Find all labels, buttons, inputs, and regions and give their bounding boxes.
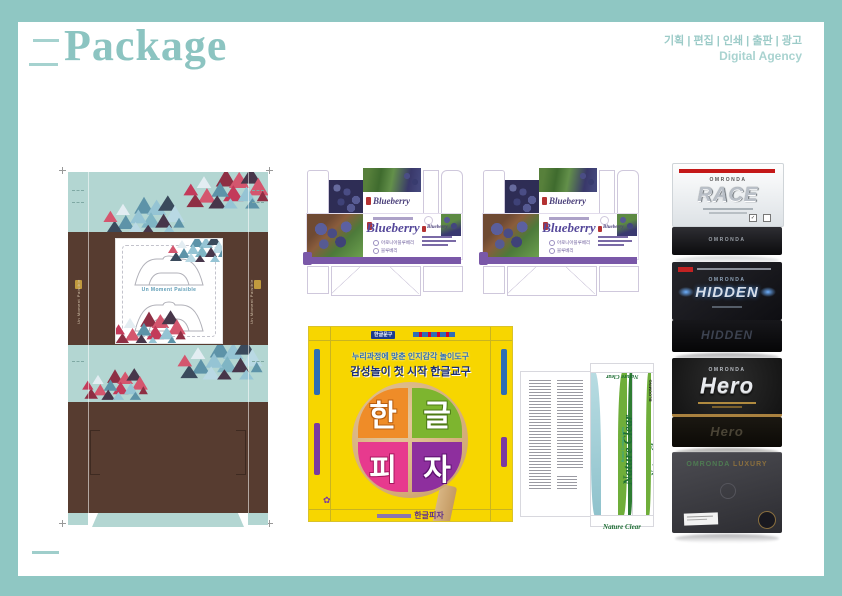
tissue-box-dieline: Un Moment Paisible Un Moment Paisible Un… <box>68 172 268 527</box>
purple-band <box>483 257 637 264</box>
nature-clear-subtitle: Brand Contact Lens <box>620 427 625 462</box>
agency-name: Digital Agency <box>664 49 802 64</box>
nature-clear-dieline: Nature Clear Brand Contact Lens Nature C… <box>520 363 652 525</box>
hidden-box-lid: OMRONDA HIDDEN <box>672 262 782 320</box>
nature-clear-name-side: Nature Clear <box>650 433 654 476</box>
micro-text-bar <box>598 240 632 242</box>
triangle-cluster-icon <box>96 194 192 232</box>
pizza-tagline-1: 누리과정에 맞춘 인지감각 놀이도구 <box>309 351 512 362</box>
bottom-flap <box>92 513 244 527</box>
hero-name: Hero <box>672 373 782 399</box>
fold-dash <box>252 202 264 203</box>
hidden-box-photo: OMRONDA HIDDEN HIDDEN <box>672 262 782 362</box>
agency-info: 기획 | 편집 | 인쇄 | 출판 | 광고 Digital Agency <box>664 34 802 64</box>
fold-line <box>248 172 249 513</box>
pizza-slice-purple: 자 <box>412 442 462 492</box>
product-name-strip: 한글피자 <box>309 510 512 521</box>
micro-text-bar <box>709 212 747 214</box>
dieline-flap <box>483 170 505 216</box>
micro-text-bar <box>687 519 707 521</box>
top-flap: Nature Clear <box>590 363 654 373</box>
tissue-back-panel <box>68 402 268 513</box>
luxury-box-body: OMRONDA LUXURY <box>672 452 782 533</box>
hang-hole <box>424 216 433 225</box>
tissue-mid-panel <box>68 345 268 402</box>
dieline-crease <box>331 266 361 294</box>
dieline-flap <box>483 266 505 294</box>
nature-clear-name-flipped: Nature Clear <box>606 373 639 379</box>
blueberry-title-side: Blueberry <box>603 225 624 230</box>
pizza-slice-green: 글 <box>412 388 462 438</box>
top-badge: 한글문구 <box>371 331 395 339</box>
tissue-side-label: Un Moment Paisible <box>76 279 81 324</box>
flavor-option: 블루베리 <box>549 248 574 254</box>
red-seal <box>366 197 371 205</box>
handle-cut <box>90 430 91 474</box>
tissue-top-panel <box>68 172 268 232</box>
blueberry-title-small: Blueberry <box>549 196 605 206</box>
option-circle-icon <box>373 240 379 246</box>
hidden-box-base: HIDDEN <box>672 320 782 352</box>
micro-text-lines <box>557 380 583 468</box>
title-mark-line-bottom <box>29 63 58 66</box>
micro-text-bar <box>598 236 628 238</box>
main-face-panel: Nature Clear Brand Contact Lens <box>590 371 634 517</box>
footer-dash <box>32 551 59 554</box>
red-seal <box>422 226 426 232</box>
handle-cut <box>245 430 246 474</box>
red-banner <box>679 169 775 173</box>
flavor-option: 아로니아블루베리 <box>549 240 590 246</box>
checkbox-empty-icon <box>763 214 771 222</box>
fold-line <box>88 172 89 513</box>
base-name-label: Hero <box>672 424 782 439</box>
base-brand-label: OMRONDA <box>672 237 782 243</box>
bottom-flap <box>68 513 88 525</box>
blueberry-photo <box>505 180 539 214</box>
micro-text-bar <box>598 244 624 246</box>
handle-cut <box>90 474 100 475</box>
luxury-box-photo: OMRONDA LUXURY <box>672 452 782 543</box>
top-micro-text-bar <box>413 332 455 337</box>
blueberry-leaves-photo <box>363 168 421 192</box>
dieline-flap <box>441 170 463 216</box>
triangle-cluster-icon <box>180 172 268 210</box>
purple-band <box>307 257 461 264</box>
reflection <box>675 534 779 543</box>
blooming-brand: BLOOMING <box>648 380 653 402</box>
emblem-icon <box>720 483 736 499</box>
side-panel-text-bar <box>501 437 507 467</box>
micro-text-bar <box>703 208 753 210</box>
dieline-crease <box>389 266 419 294</box>
triangle-cluster-icon <box>164 238 223 263</box>
bottom-flap: Nature Clear <box>590 515 654 527</box>
side-panel-text-bar <box>314 349 320 395</box>
race-box-lid: OMRONDA RACE ✓ <box>672 163 784 227</box>
tissue-label: Un Moment Paisible <box>116 287 222 293</box>
dieline-flap <box>307 170 329 216</box>
fold-dash <box>72 190 84 191</box>
blue-wave <box>591 372 601 516</box>
side-face-panel: Nature Clear BLOOMING <box>632 371 654 517</box>
micro-text-bar <box>712 406 742 408</box>
instructions-panel <box>520 371 592 517</box>
red-seal <box>542 197 547 205</box>
dieline-flap <box>617 170 639 216</box>
micro-text-bar <box>697 268 771 270</box>
option-circle-icon <box>373 248 379 254</box>
micro-text-bar <box>687 516 713 518</box>
fold-line <box>309 340 512 341</box>
dieline-crease <box>565 266 595 294</box>
reg-mark <box>59 520 66 527</box>
reg-mark <box>59 167 66 174</box>
micro-text-bar <box>422 244 448 246</box>
blueberry-photo-main <box>307 214 363 257</box>
base-name-label: HIDDEN <box>672 328 782 342</box>
micro-text-bar <box>712 306 742 308</box>
tissue-side-label: Un Moment Paisible <box>249 279 254 324</box>
dieline-flap <box>599 266 639 292</box>
brand-label: OMRONDA <box>672 277 782 283</box>
handle-cut <box>236 474 246 475</box>
micro-text-lines <box>529 380 551 490</box>
title-mark-line-top <box>33 39 59 42</box>
gold-logo <box>254 280 261 289</box>
round-badge <box>758 511 776 529</box>
dieline-flap <box>423 266 463 292</box>
luxury-name: LUXURY <box>733 461 768 468</box>
hangul-pizza-box: 한글문구 누리과정에 맞춘 인지감각 놀이도구 감성놀이 첫 시작 한글교구 한… <box>309 327 512 521</box>
dieline-flap <box>423 170 439 216</box>
side-panel-text-bar <box>501 349 507 395</box>
handle-cut <box>236 430 246 431</box>
side-panel-text-bar <box>314 423 320 475</box>
blueberry-photo-main <box>483 214 539 257</box>
red-label <box>678 267 693 272</box>
blueberry-dieline: Blueberry Blueberry 아로니아블루베리 블루베리 Bluebe… <box>303 164 471 296</box>
pizza-slice-pink: 피 <box>358 442 408 492</box>
portfolio-page: Package 기획 | 편집 | 인쇄 | 출판 | 광고 Digital A… <box>0 0 842 596</box>
brand-label: OMRONDA <box>673 177 783 183</box>
bottom-flap <box>248 513 268 525</box>
page-title: Package <box>64 20 227 71</box>
blueberry-title-side: Blueberry <box>427 225 448 230</box>
race-box-base: OMRONDA <box>672 227 782 255</box>
tissue-face-panel: Un Moment Paisible <box>115 238 223 344</box>
dieline-flap <box>599 170 615 216</box>
micro-text-bar <box>377 514 411 518</box>
race-box-photo: OMRONDA RACE ✓ OMRONDA <box>672 163 782 265</box>
blueberry-title: Blueberry <box>365 220 421 236</box>
blueberry-leaves-photo <box>539 168 597 192</box>
fold-dash <box>252 190 264 191</box>
luxury-header: OMRONDA LUXURY <box>672 461 782 468</box>
triangle-cluster-icon <box>115 309 192 344</box>
option-circle-icon <box>549 240 555 246</box>
hang-hole <box>600 216 609 225</box>
pizza-slice-orange: 한 <box>358 388 408 438</box>
blueberry-dieline: Blueberry Blueberry 아로니아블루베리 블루베리 Bluebe… <box>479 164 647 296</box>
blueberry-title-small: Blueberry <box>373 196 429 206</box>
handle-cut <box>90 430 100 431</box>
micro-text-lines <box>557 476 577 490</box>
red-seal <box>598 226 602 232</box>
fold-dash <box>252 361 264 362</box>
fold-dash <box>72 202 84 203</box>
flavor-option: 아로니아블루베리 <box>373 240 414 246</box>
triangle-cluster-icon <box>170 345 268 381</box>
hidden-name: HIDDEN <box>672 284 782 301</box>
blueberry-title: Blueberry <box>541 220 597 236</box>
checkbox-checked-icon: ✓ <box>749 214 757 222</box>
services-text: 기획 | 편집 | 인쇄 | 출판 | 광고 <box>664 34 802 49</box>
micro-text-bar <box>422 240 456 242</box>
blueberry-photo <box>329 180 363 214</box>
pizza-tagline-2: 감성놀이 첫 시작 한글교구 <box>309 363 512 379</box>
micro-text-bar <box>698 402 756 404</box>
nature-clear-name-bottom: Nature Clear <box>603 523 641 531</box>
brand-label: OMRONDA <box>686 461 730 468</box>
flavor-option: 블루베리 <box>373 248 398 254</box>
race-name: RACE <box>673 184 783 207</box>
option-circle-icon <box>549 248 555 254</box>
hero-box-base: Hero <box>672 417 782 447</box>
dieline-flap <box>307 266 329 294</box>
dieline-crease <box>507 266 537 294</box>
hero-box-photo: OMRONDA Hero Hero <box>672 358 782 457</box>
white-label <box>684 512 718 525</box>
publisher-logo: ✿ <box>323 495 331 506</box>
hero-box-lid: OMRONDA Hero <box>672 358 782 417</box>
fold-dash <box>72 361 84 362</box>
micro-text-bar <box>422 236 452 238</box>
